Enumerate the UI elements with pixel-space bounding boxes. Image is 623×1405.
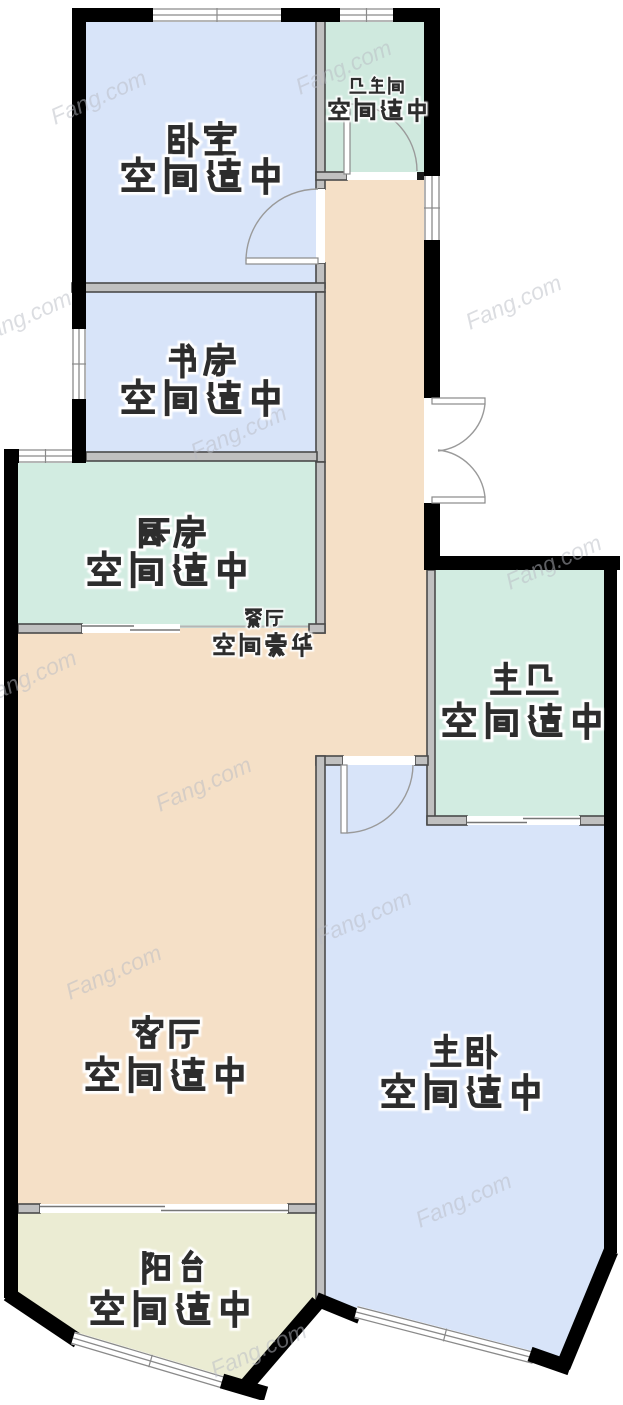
svg-text:Fang.com: Fang.com (0, 284, 75, 349)
svg-text:Fang.com: Fang.com (461, 269, 565, 334)
